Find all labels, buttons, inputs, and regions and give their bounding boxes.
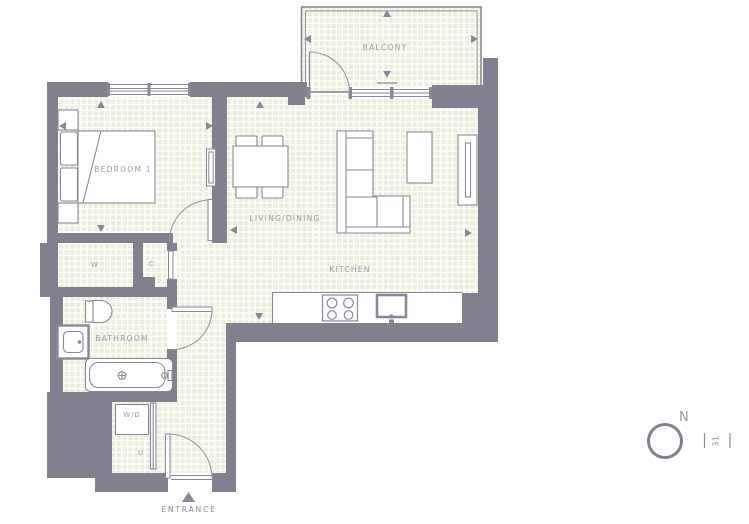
wall-bottom-right-of-entrance: [212, 473, 236, 492]
compass-circle-icon: [649, 425, 682, 458]
pillow: [61, 168, 78, 201]
entrance-annotation: ENTRANCE: [161, 492, 216, 514]
entrance-label: ENTRANCE: [161, 505, 216, 514]
living-dining-label: LIVING/DINING: [249, 214, 320, 223]
closet-label: C: [149, 260, 155, 268]
floor-plan-page: BEDROOM 1 LIVING/DINING KITCHEN BALCONY …: [0, 0, 749, 524]
tv-screen: [466, 143, 471, 197]
floor-plan-drawing: BEDROOM 1 LIVING/DINING KITCHEN BALCONY …: [0, 0, 749, 524]
bedroom-radiator: [207, 149, 216, 186]
wardrobe-label: W: [91, 261, 99, 269]
wall-bottom-left-block: [47, 398, 112, 478]
plot-number: 31: [712, 435, 721, 446]
washer-dryer-label: W/D: [123, 411, 141, 419]
toilet: [86, 301, 113, 323]
wall-below-kitchen: [226, 323, 462, 342]
utility-label: U: [138, 449, 144, 457]
bedroom-window: [107, 82, 191, 97]
wall-wardrobe-closet-divider: [133, 243, 143, 287]
wall-right-main: [478, 105, 498, 298]
wall-bottom-left-of-entrance: [95, 473, 168, 492]
dining-chair: [262, 186, 283, 198]
entrance-arrow-icon: [182, 492, 195, 502]
pillow: [61, 132, 78, 165]
wall-left-bedroom: [47, 82, 58, 243]
kitchen-counter: [272, 292, 462, 324]
wall-bedroom-bottom: [47, 233, 173, 243]
closet-door: [169, 251, 174, 279]
dining-table: [233, 146, 288, 187]
wall-right-lower: [462, 293, 498, 342]
tv-unit: [458, 135, 477, 205]
wall-closet-right-stub-top: [167, 243, 177, 251]
bathroom-label: BATHROOM: [95, 334, 149, 343]
bedroom-label: BEDROOM 1: [94, 165, 152, 174]
wall-bathroom-top: [40, 287, 177, 297]
wall-corridor-right: [226, 323, 236, 492]
kitchen-label: KITCHEN: [329, 265, 370, 274]
wall-balcony-pier-right: [432, 85, 498, 108]
basin: [58, 326, 89, 359]
nightstand-bottom: [58, 203, 78, 223]
wall-balcony-pier-left: [288, 82, 305, 105]
bedroom-door-gap-floor: [173, 233, 212, 243]
dining-chair: [236, 186, 257, 198]
wall-closet-right-stub-bottom: [167, 279, 177, 287]
wall-right-upper: [483, 58, 498, 88]
bathtub: [86, 359, 173, 392]
north-label: N: [679, 410, 689, 425]
balcony-label: BALCONY: [363, 43, 408, 52]
side-table: [407, 132, 432, 183]
compass: N 31: [649, 410, 731, 458]
